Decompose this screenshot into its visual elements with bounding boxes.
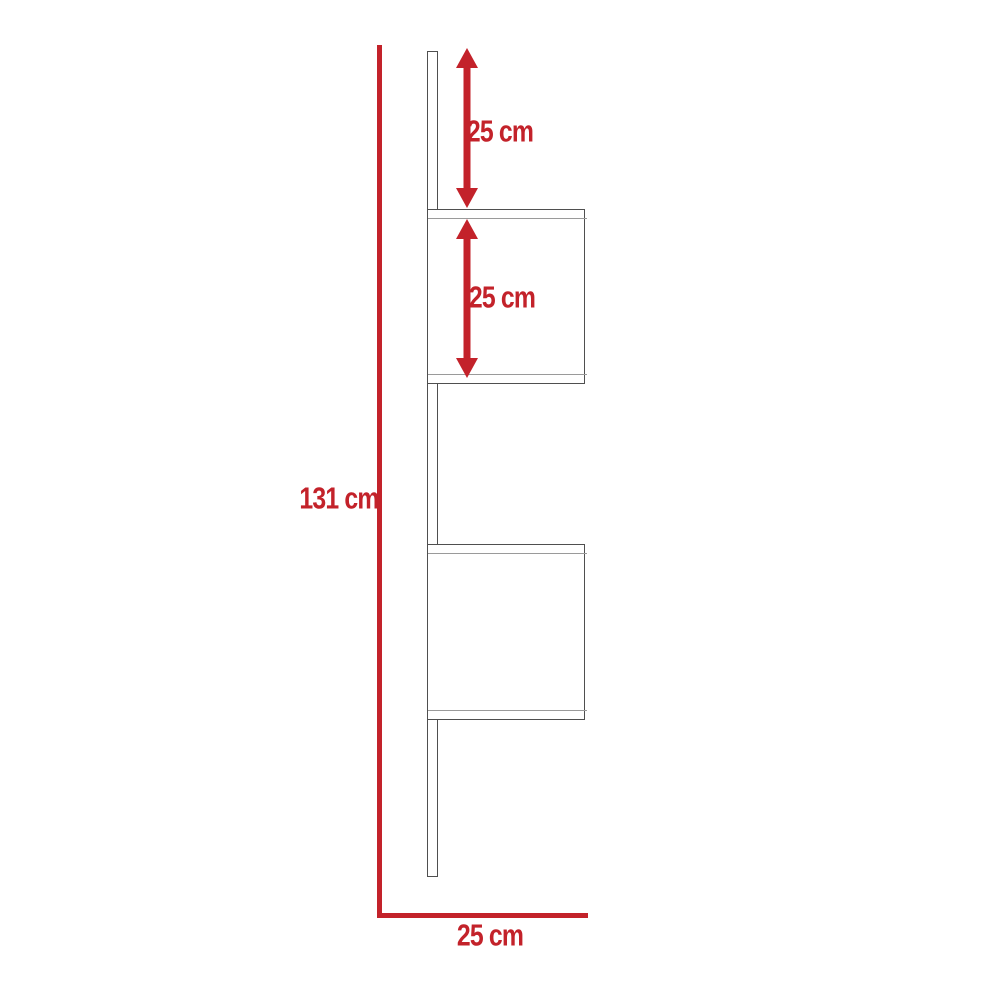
vertical-upright-panel [427,51,438,877]
shelf-segment-dimension-label: 25 cm [469,282,535,313]
top-segment-dimension-label: 25 cm [467,116,533,147]
lower-box-shelf [427,544,585,720]
upper-shelf-bottom-board-line [428,374,587,375]
total-height-dimension-label: 131 cm [299,483,378,514]
arrow-down-icon [456,358,478,378]
dimension-diagram: 25 cm 25 cm 131 cm 25 cm [0,0,1000,1000]
upper-shelf-top-board-line [428,218,587,219]
base-width-dimension-label: 25 cm [457,920,523,951]
lower-shelf-bottom-board-line [428,710,587,711]
lower-shelf-top-board-line [428,553,587,554]
arrow-down-icon [456,188,478,208]
